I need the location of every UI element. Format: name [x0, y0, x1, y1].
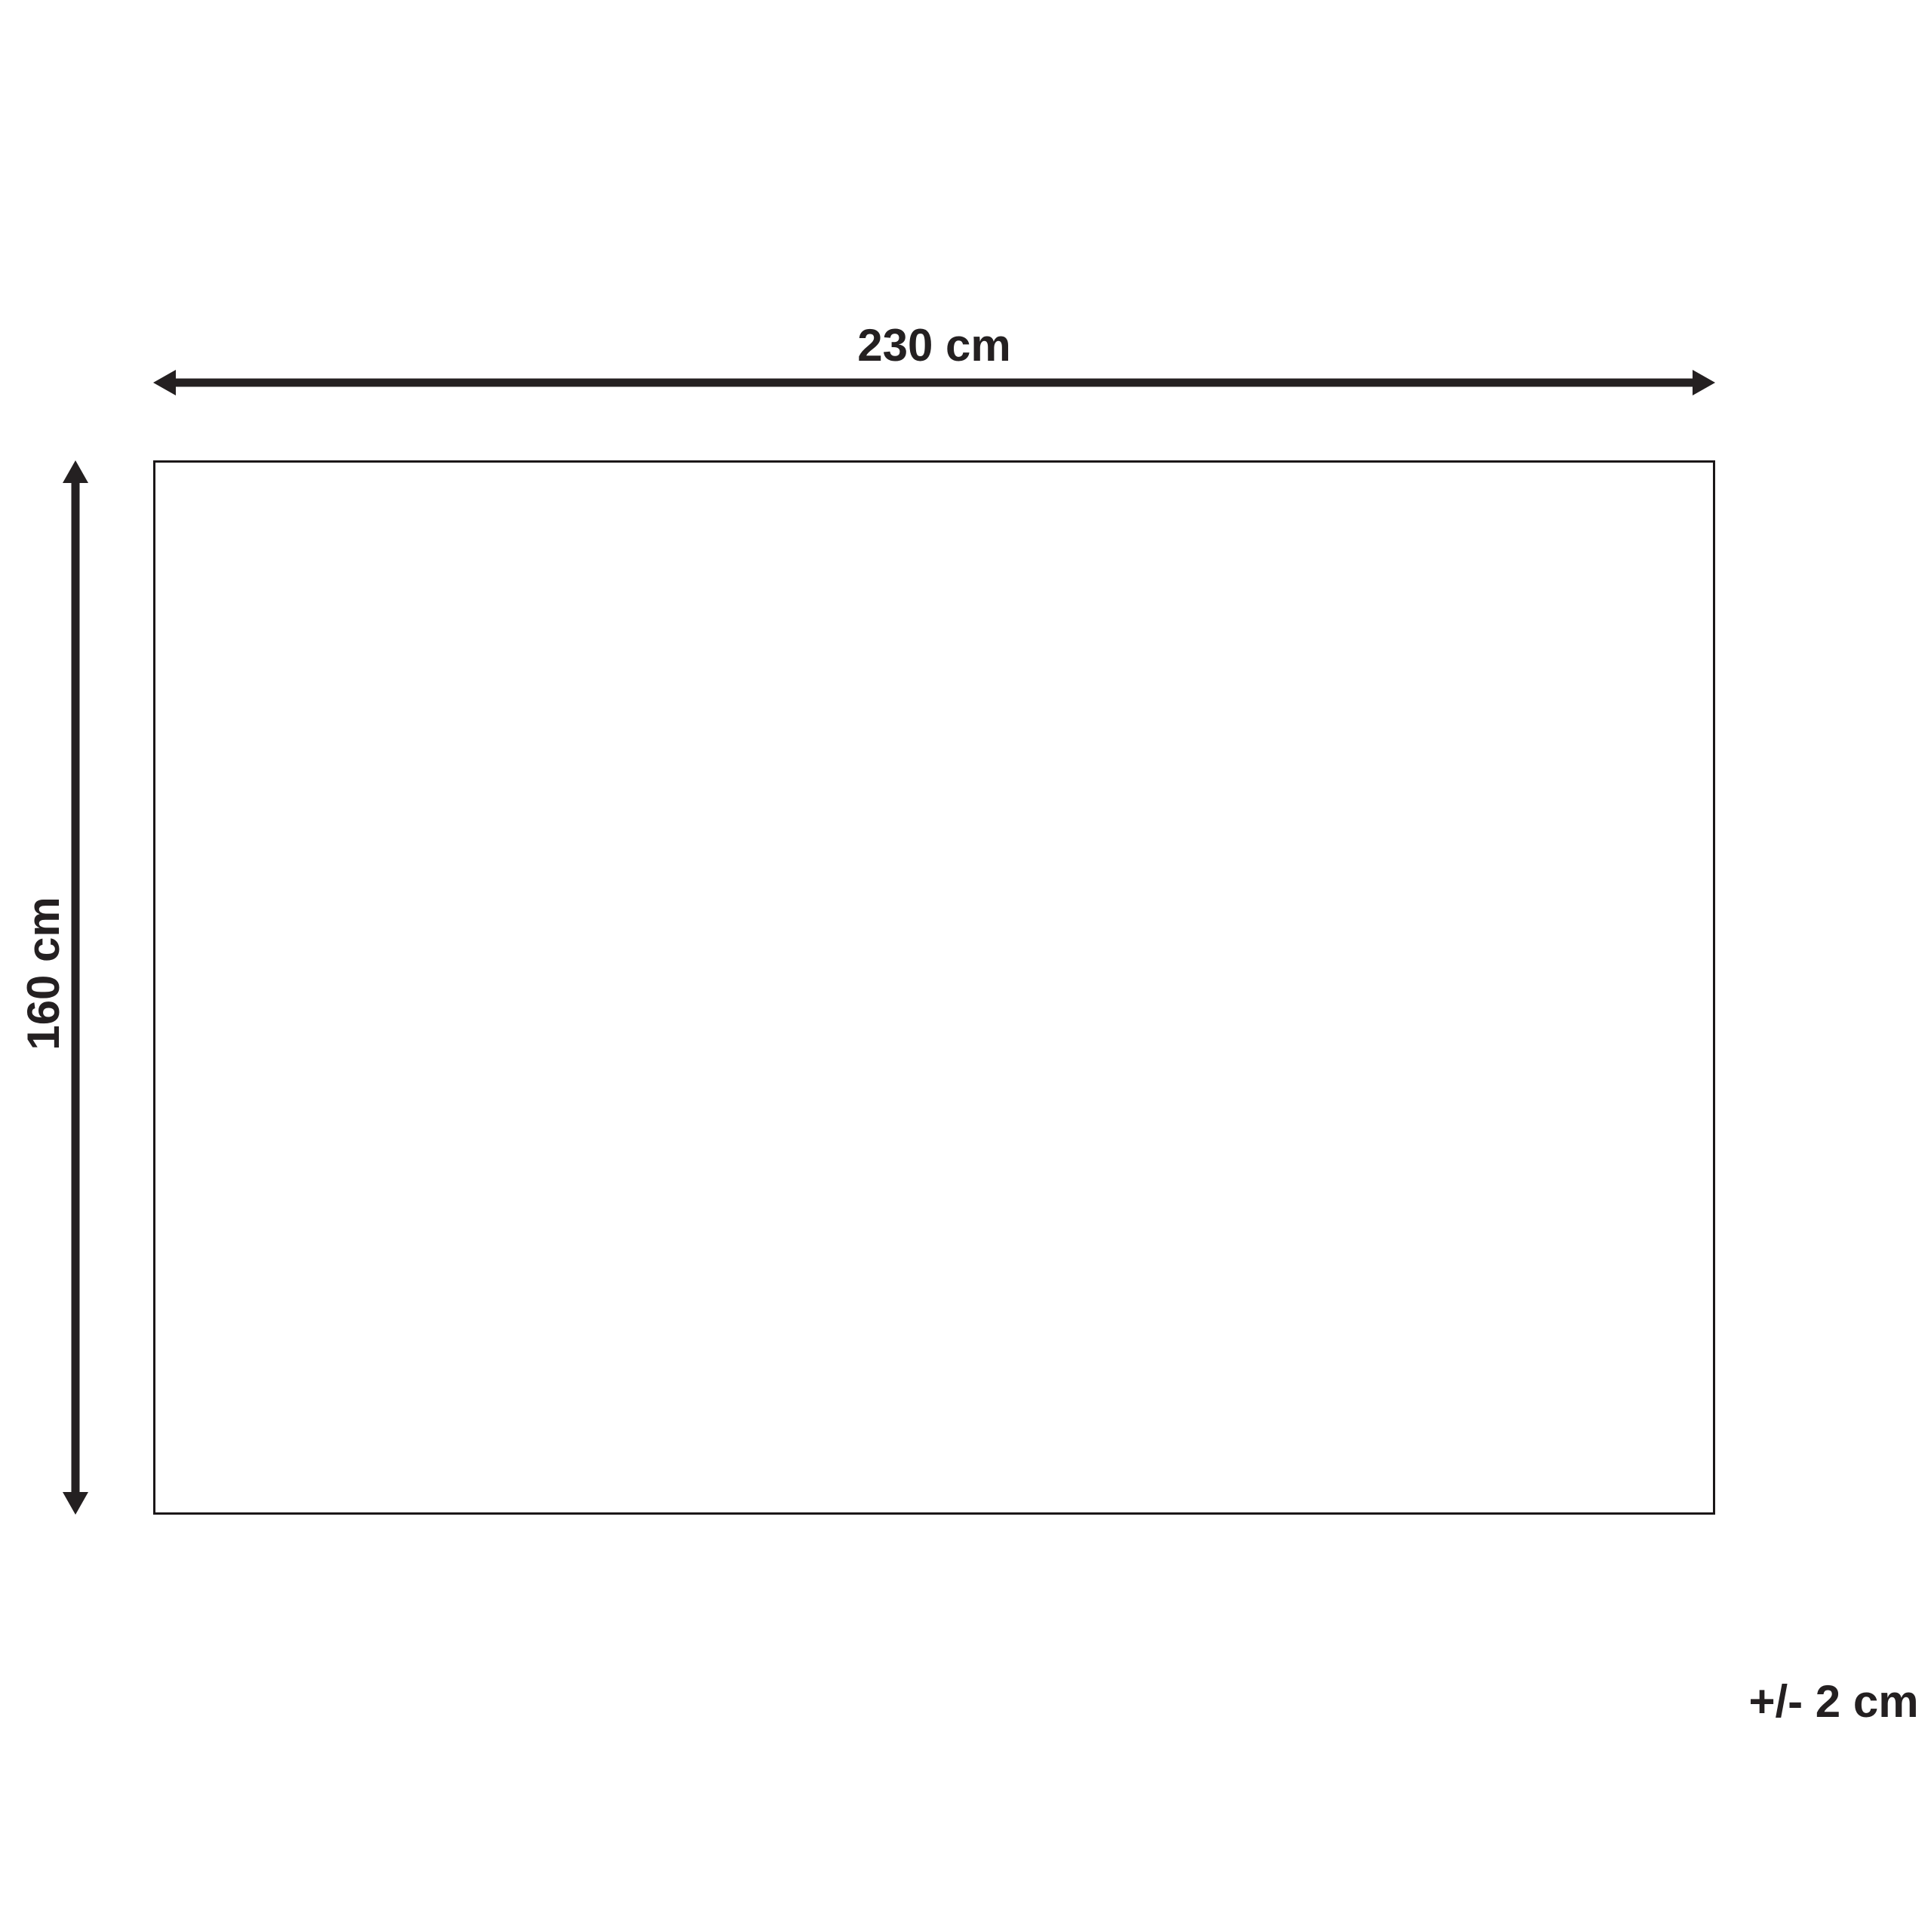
height-arrow-line	[72, 480, 80, 1495]
arrowhead-left-icon	[153, 370, 176, 395]
dimension-diagram: 230 cm 160 cm +/- 2 cm	[0, 0, 1931, 1932]
arrowhead-right-icon	[1693, 370, 1715, 395]
product-outline-rectangle	[153, 460, 1715, 1515]
arrowhead-up-icon	[63, 460, 88, 483]
width-arrow-line	[173, 379, 1696, 387]
arrowhead-down-icon	[63, 1492, 88, 1515]
width-dimension-label: 230 cm	[153, 323, 1715, 368]
height-dimension-label: 160 cm	[21, 891, 66, 1057]
width-dimension-arrow	[153, 368, 1715, 398]
tolerance-label: +/- 2 cm	[1702, 1679, 1931, 1724]
